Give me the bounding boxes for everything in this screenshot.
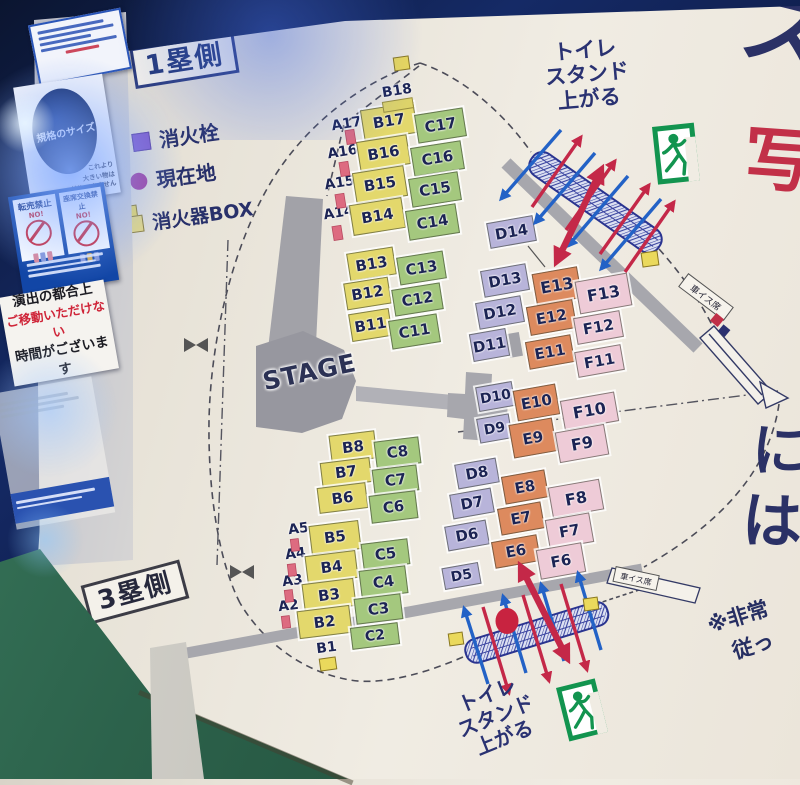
prohibition-circle-icon: [71, 219, 101, 249]
no-resale-panel: 転売禁止 NO!: [12, 194, 64, 262]
faint-lower-sign: [0, 376, 115, 529]
photo-of-venue-seating-map-board: { "colors": { "seat-b": "#e3d86c", "seat…: [0, 0, 800, 779]
size-limit-sign: 規格のサイズ これより 大きい物は 持込できません: [13, 74, 121, 207]
rules-sign: [28, 8, 132, 87]
prohibition-circle-icon: [24, 218, 54, 248]
no-seat-exchange-panel: 座席交換禁止 NO!: [58, 187, 110, 255]
blue-band: [10, 477, 114, 524]
no-moving-notice-sign: 演出の都合上 ご移動いただけない 時間がございます: [0, 279, 119, 386]
post-signs: 規格のサイズ これより 大きい物は 持込できません 転売禁止 NO! 座席交換禁…: [0, 0, 800, 779]
